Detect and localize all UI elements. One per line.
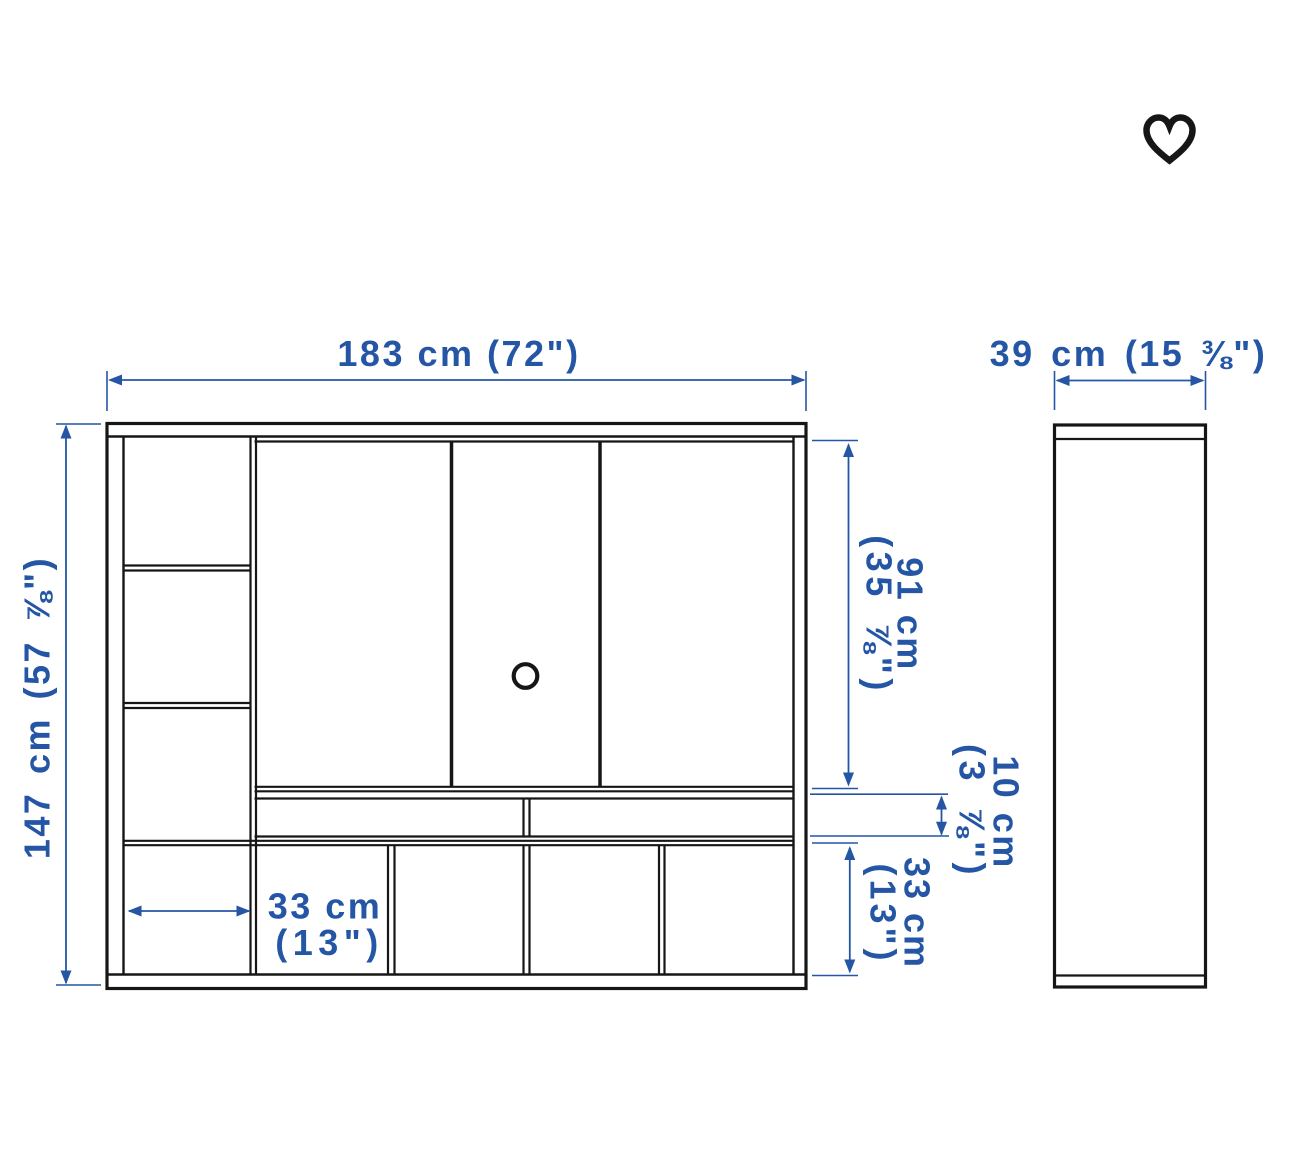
svg-text:(3 ⅞"): (3 ⅞") xyxy=(952,744,993,879)
svg-text:183 cm (72"): 183 cm (72") xyxy=(337,333,580,374)
svg-text:(13"): (13") xyxy=(275,922,384,963)
svg-text:33 cm: 33 cm xyxy=(268,886,383,927)
svg-text:(35 ⅞"): (35 ⅞") xyxy=(859,535,900,695)
svg-text:39 cm (15 ⅜"): 39 cm (15 ⅜") xyxy=(990,333,1268,374)
svg-text:147 cm (57 ⅞"): 147 cm (57 ⅞") xyxy=(17,556,58,859)
svg-text:(13"): (13") xyxy=(863,863,904,964)
